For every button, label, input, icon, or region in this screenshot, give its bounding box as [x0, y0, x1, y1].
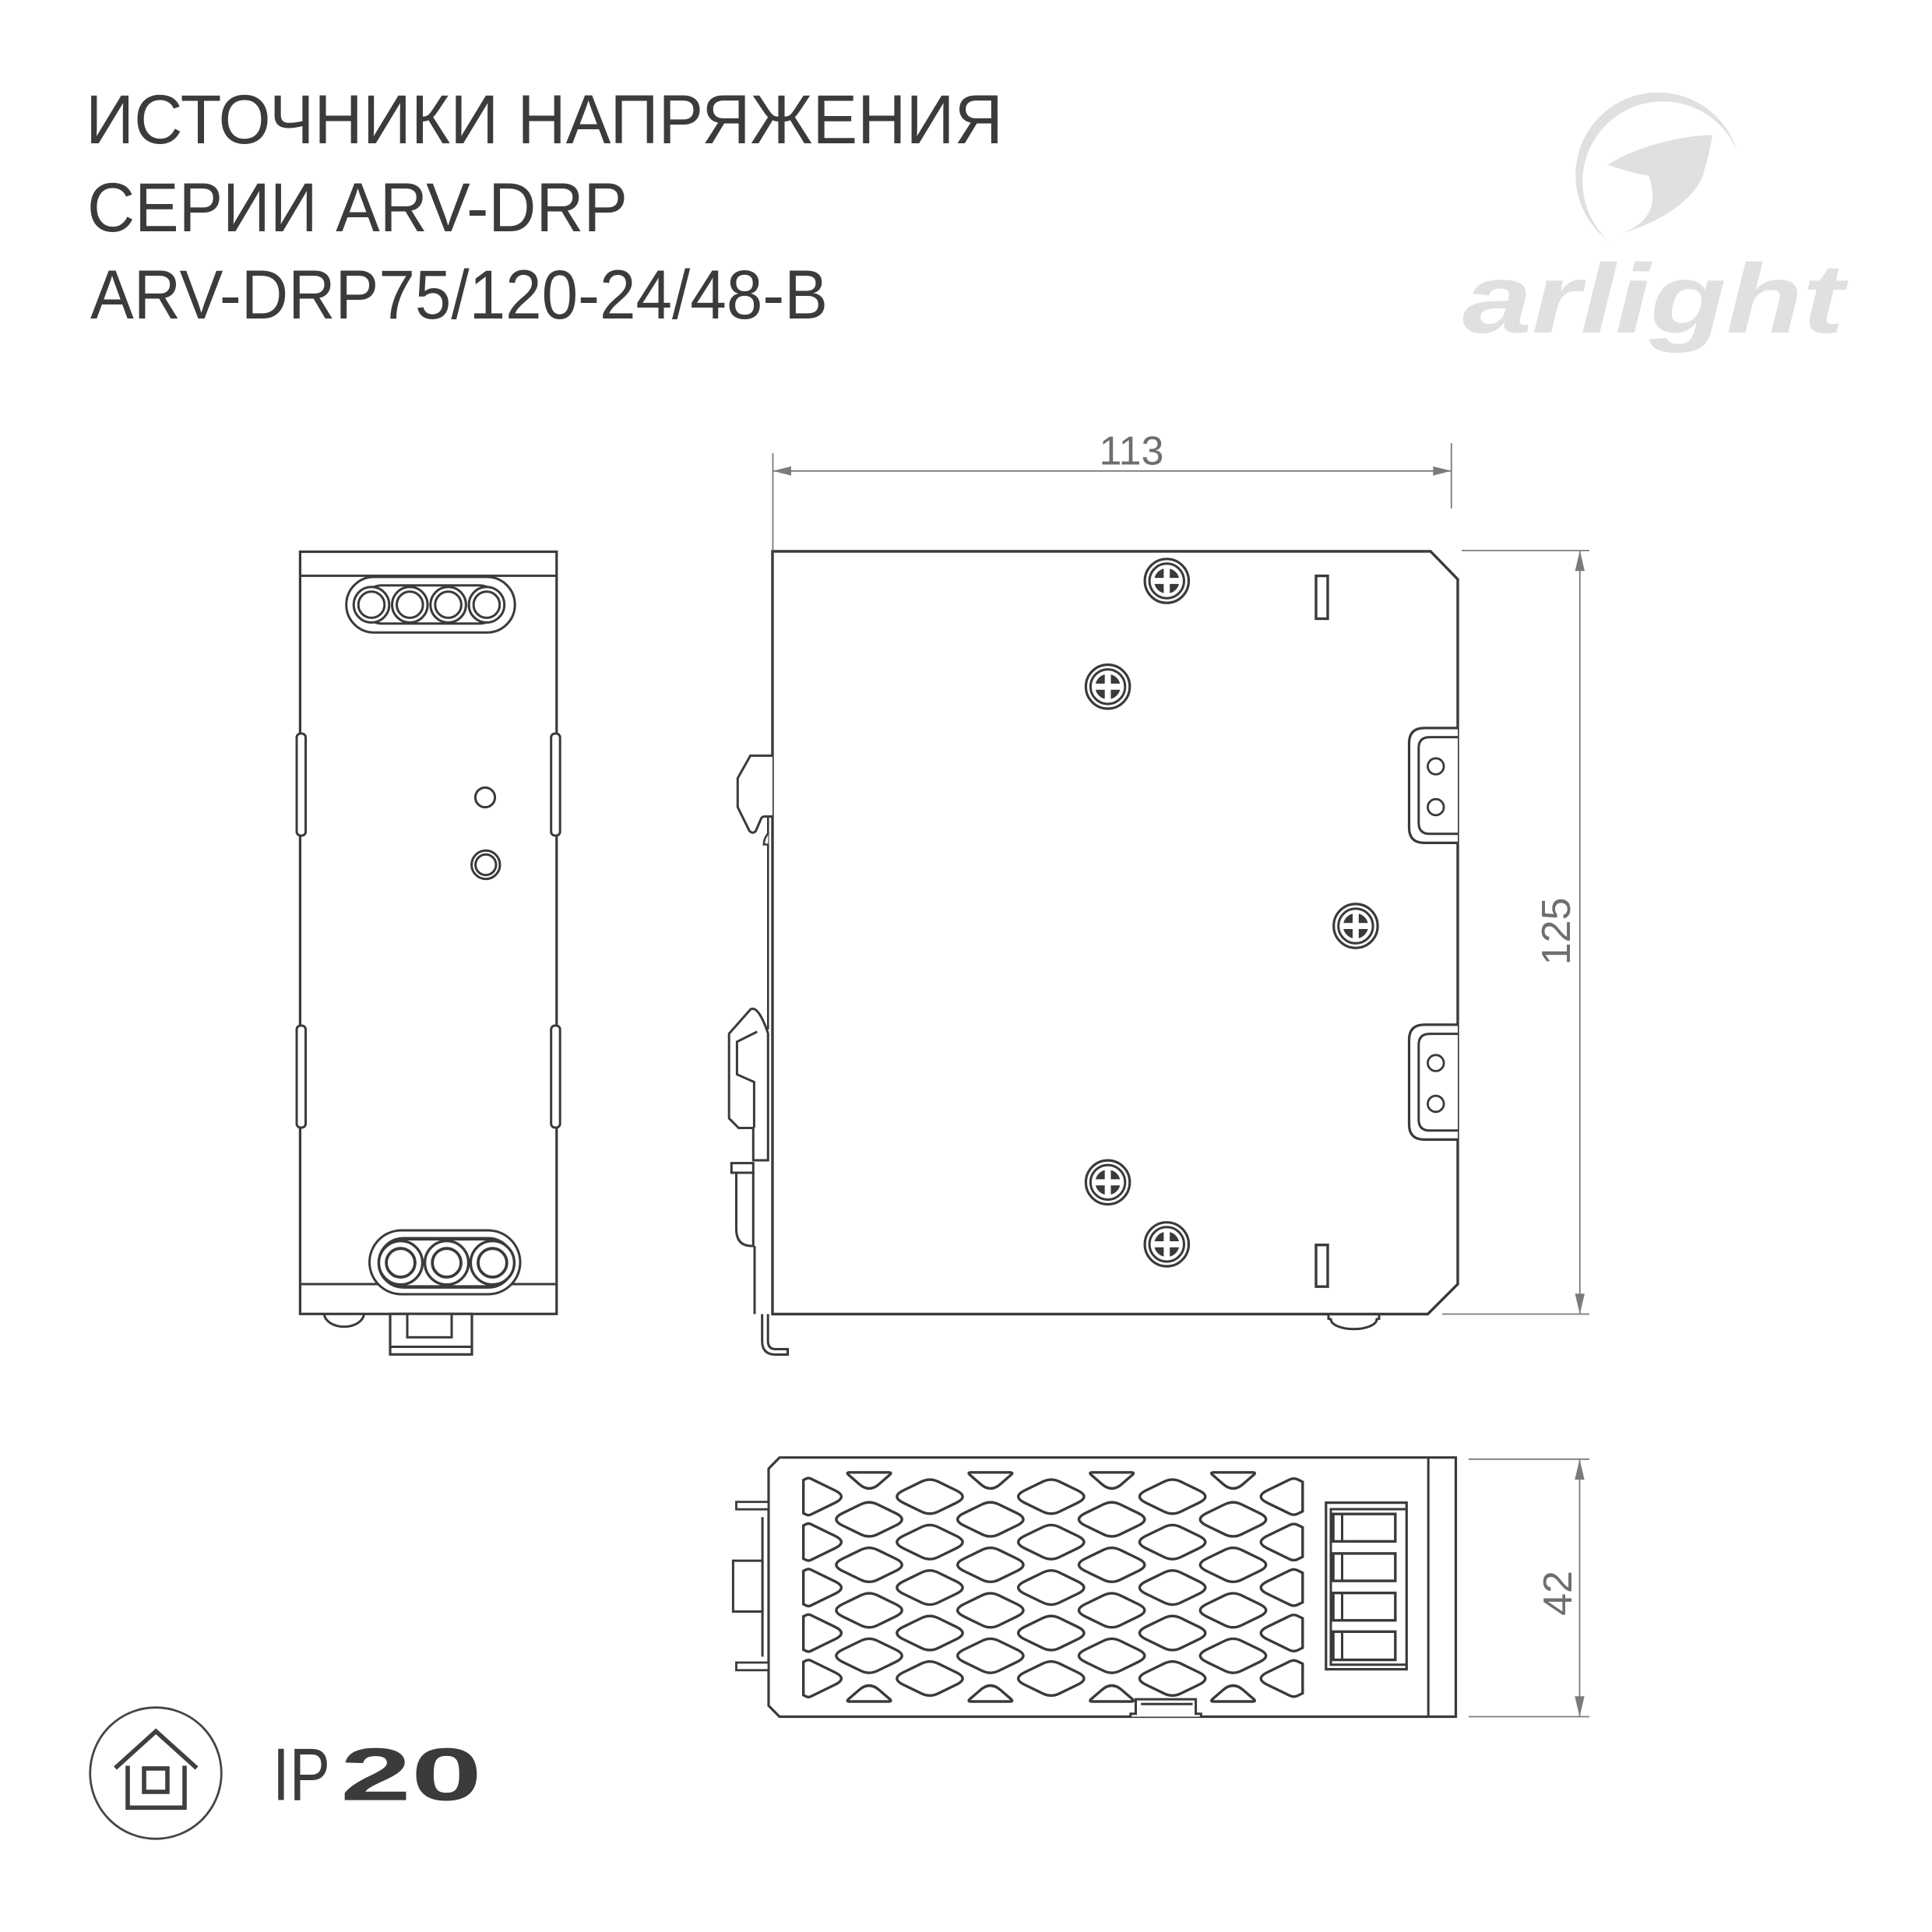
svg-text:СЕРИИ ARV-DRP: СЕРИИ ARV-DRP [87, 168, 628, 246]
svg-text:ИСТОЧНИКИ НАПРЯЖЕНИЯ: ИСТОЧНИКИ НАПРЯЖЕНИЯ [86, 80, 1003, 158]
svg-text:20: 20 [340, 1733, 482, 1817]
svg-text:125: 125 [1534, 898, 1579, 966]
svg-text:arlight: arlight [1462, 244, 1849, 354]
svg-text:42: 42 [1536, 1571, 1581, 1616]
svg-text:ARV-DRP75/120-24/48-B: ARV-DRP75/120-24/48-B [90, 255, 828, 333]
svg-text:IP: IP [273, 1733, 330, 1817]
svg-text:113: 113 [1100, 428, 1164, 473]
